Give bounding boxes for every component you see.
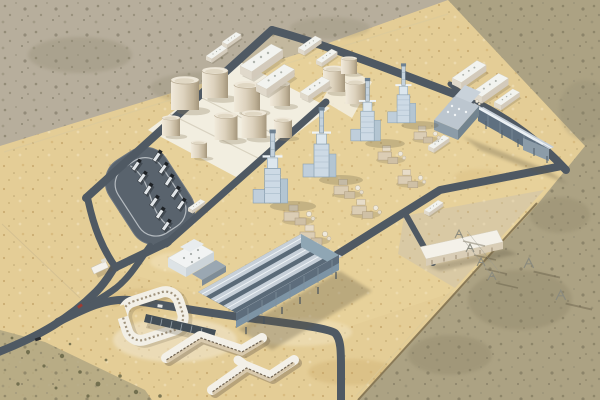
rendered-image (0, 0, 600, 400)
power-plant-aerial-render (0, 0, 600, 400)
